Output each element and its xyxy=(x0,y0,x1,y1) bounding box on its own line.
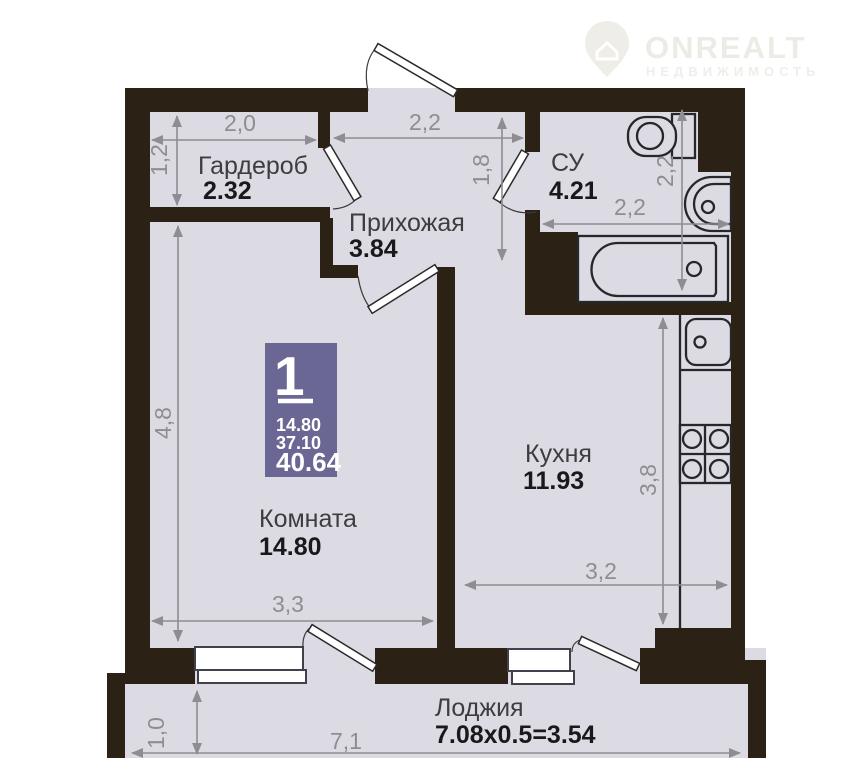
wardrobe-area: 2.32 xyxy=(203,177,252,205)
dim-loggia-height: 1,0 xyxy=(143,717,169,749)
kitchen-area: 11.93 xyxy=(523,467,584,495)
info-badge: 1 14.80 37.10 40.64 xyxy=(265,343,342,477)
badge-total-area: 40.64 xyxy=(276,447,342,477)
dim-kitchen-width: 3,2 xyxy=(585,558,617,584)
dim-wardrobe-height: 1,2 xyxy=(146,144,172,176)
living-room-window xyxy=(195,647,306,683)
badge-room-area: 14.80 xyxy=(276,415,321,435)
floorplan-drawing: ONREALT НЕДВИЖИМОСТЬ xyxy=(0,0,848,758)
hallway-area: 3.84 xyxy=(349,235,398,263)
badge-room-count: 1 xyxy=(274,345,305,407)
bathtub-icon xyxy=(578,236,728,302)
floorplan-page: ONREALT НЕДВИЖИМОСТЬ xyxy=(0,0,848,758)
dim-hallway-height: 1,8 xyxy=(468,154,494,186)
dim-hallway-width: 2,2 xyxy=(409,109,441,135)
loggia-name: Лоджия xyxy=(435,694,524,722)
dim-living-room-width: 3,3 xyxy=(272,591,304,617)
dim-loggia-width: 7,1 xyxy=(330,728,362,754)
dim-wardrobe-width: 2,0 xyxy=(224,110,256,136)
kitchen-window xyxy=(508,649,574,684)
wardrobe-name: Гардероб xyxy=(198,152,308,180)
stove-icon xyxy=(680,425,731,483)
loggia-area: 7.08x0.5=3.54 xyxy=(435,721,596,749)
living-room-area: 14.80 xyxy=(259,533,322,561)
bathroom-name: СУ xyxy=(551,149,584,177)
living-room-name: Комната xyxy=(259,505,357,533)
toilet-icon xyxy=(628,114,695,158)
hallway-name: Прихожая xyxy=(349,209,465,237)
dim-bathroom-width: 2,2 xyxy=(614,194,646,220)
kitchen-sink-icon xyxy=(686,319,731,365)
dim-living-room-height: 4,8 xyxy=(150,407,176,439)
kitchen-name: Кухня xyxy=(525,440,592,468)
pin-house-icon xyxy=(585,21,629,77)
bathroom-sink-icon xyxy=(685,177,731,231)
onrealt-watermark: ONREALT НЕДВИЖИМОСТЬ xyxy=(585,21,820,79)
dim-bathroom-height: 2,2 xyxy=(652,155,678,187)
watermark-brand: ONREALT xyxy=(645,30,807,65)
watermark-subtitle: НЕДВИЖИМОСТЬ xyxy=(646,64,820,79)
bathroom-area: 4.21 xyxy=(549,177,598,205)
dim-kitchen-height: 3,8 xyxy=(635,464,661,496)
